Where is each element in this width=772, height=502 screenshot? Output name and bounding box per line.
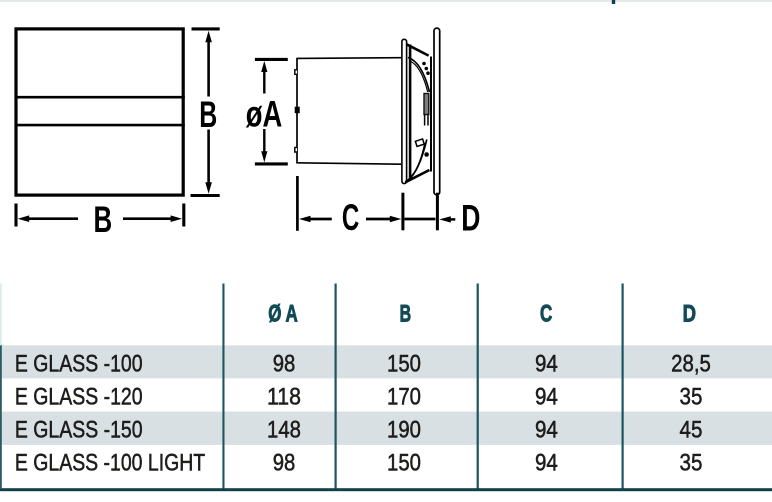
svg-text:øA: øA bbox=[246, 93, 283, 135]
svg-text:150: 150 bbox=[387, 450, 421, 477]
svg-text:E GLASS -150: E GLASS -150 bbox=[15, 417, 143, 444]
svg-text:E GLASS -100: E GLASS -100 bbox=[15, 350, 143, 377]
svg-text:94: 94 bbox=[535, 383, 558, 410]
svg-text:98: 98 bbox=[273, 450, 296, 477]
svg-text:C: C bbox=[342, 196, 359, 238]
svg-text:94: 94 bbox=[535, 450, 558, 477]
svg-text:98: 98 bbox=[273, 350, 296, 377]
svg-text:D: D bbox=[461, 197, 480, 239]
svg-text:94: 94 bbox=[535, 417, 558, 444]
svg-text:45: 45 bbox=[680, 417, 703, 444]
svg-text:D: D bbox=[683, 301, 696, 328]
svg-text:B: B bbox=[400, 301, 412, 328]
svg-text:94: 94 bbox=[535, 350, 558, 377]
svg-text:148: 148 bbox=[267, 417, 301, 444]
svg-text:B: B bbox=[94, 198, 113, 240]
svg-text:Ø A: Ø A bbox=[268, 301, 298, 328]
svg-text:28,5: 28,5 bbox=[671, 350, 711, 377]
svg-text:B: B bbox=[199, 93, 217, 135]
svg-text:E GLASS -100 LIGHT: E GLASS -100 LIGHT bbox=[15, 450, 205, 477]
svg-text:118: 118 bbox=[267, 383, 301, 410]
svg-text:E GLASS -120: E GLASS -120 bbox=[15, 383, 143, 410]
svg-text:170: 170 bbox=[387, 383, 421, 410]
svg-text:190: 190 bbox=[387, 417, 421, 444]
svg-text:C: C bbox=[540, 301, 553, 328]
svg-text:35: 35 bbox=[680, 383, 703, 410]
svg-text:35: 35 bbox=[680, 450, 703, 477]
svg-text:150: 150 bbox=[387, 350, 421, 377]
